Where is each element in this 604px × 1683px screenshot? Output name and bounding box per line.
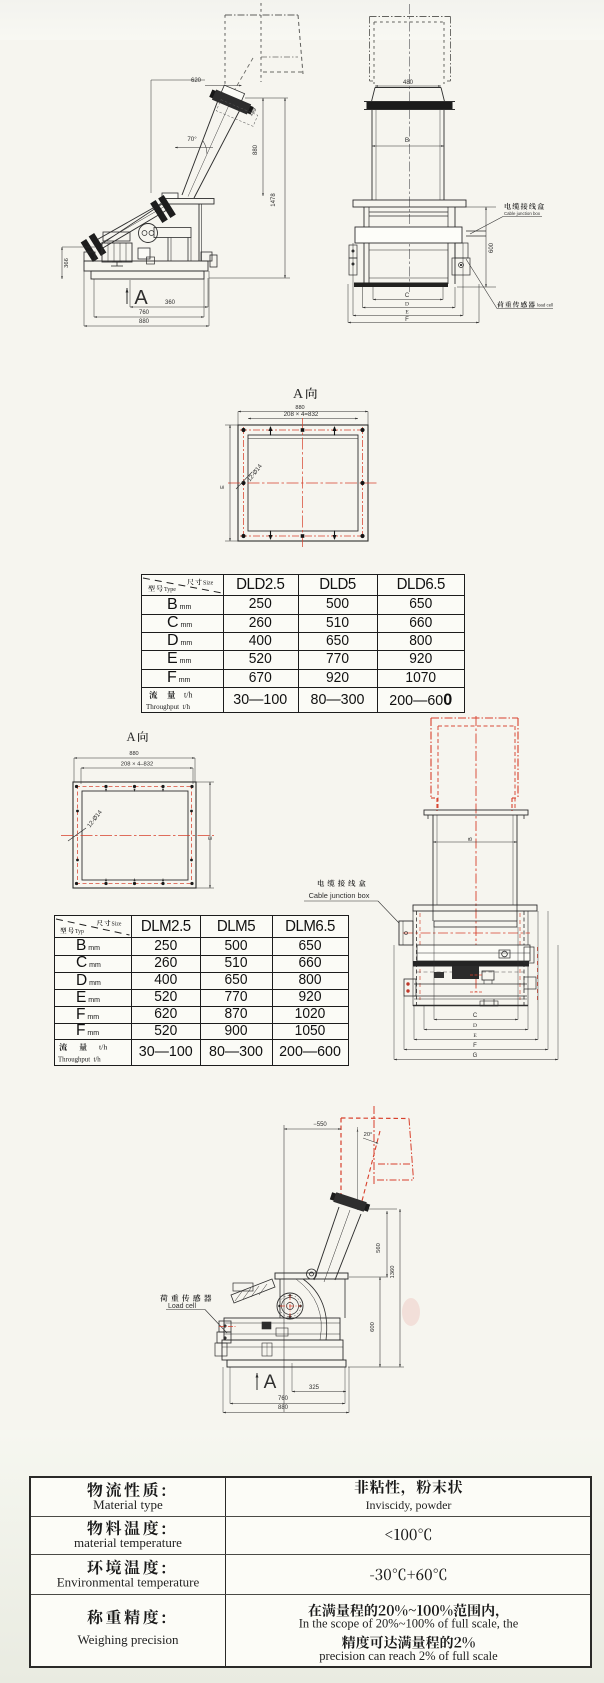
svg-text:In the scope of 20%~100% of fu: In the scope of 20%~100% of full scale, … [299, 1617, 519, 1631]
svg-text:480: 480 [403, 80, 414, 86]
svg-text:12-Ø14: 12-Ø14 [87, 809, 104, 829]
svg-text:A: A [126, 730, 135, 744]
svg-text:880: 880 [139, 319, 150, 325]
svg-text:325: 325 [309, 1385, 320, 1391]
svg-text:t/h: t/h [184, 691, 192, 700]
svg-text:F: F [405, 317, 409, 323]
svg-text:t/h: t/h [99, 1043, 107, 1052]
svg-text:360: 360 [165, 300, 176, 306]
svg-text:C: C [473, 1013, 478, 1019]
svg-text:Cable junction box: Cable junction box [504, 211, 541, 216]
svg-text:Cable junction box: Cable junction box [309, 891, 370, 900]
svg-text:D: D [473, 1023, 477, 1029]
svg-text:1360: 1360 [390, 1266, 396, 1279]
svg-text:G: G [473, 1053, 478, 1059]
svg-text:760: 760 [139, 310, 150, 316]
svg-text:material temperature: material temperature [74, 1535, 182, 1550]
svg-text:600: 600 [489, 242, 495, 253]
svg-text:Throughput t/h: Throughput t/h [146, 703, 190, 711]
svg-text:A: A [293, 387, 304, 402]
svg-text:Inviscidy, powder: Inviscidy, powder [366, 1498, 452, 1512]
svg-text:620: 620 [191, 78, 202, 84]
svg-text:Type: Type [164, 587, 176, 593]
svg-text:Throughput t/h: Throughput t/h [58, 1057, 101, 1064]
svg-text:E: E [208, 836, 214, 840]
svg-text:208 × 4=832: 208 × 4=832 [284, 411, 319, 418]
svg-text:366: 366 [64, 258, 70, 268]
svg-text:Size: Size [203, 581, 214, 587]
svg-text:Typ: Typ [75, 929, 84, 935]
svg-text:B: B [405, 137, 409, 144]
svg-text:880: 880 [129, 751, 138, 757]
svg-text:E: E [405, 310, 409, 316]
svg-text:E: E [220, 485, 226, 489]
svg-text:A: A [134, 287, 148, 309]
svg-text:600: 600 [370, 1322, 376, 1332]
svg-text:A: A [264, 1372, 277, 1393]
svg-text:F: F [473, 1043, 477, 1049]
svg-text:Environmental temperature: Environmental temperature [57, 1574, 200, 1589]
svg-text:Weighing precision: Weighing precision [77, 1632, 179, 1647]
svg-text:E: E [473, 1033, 477, 1039]
svg-text:−550: −550 [313, 1122, 327, 1128]
svg-text:1478: 1478 [271, 193, 277, 207]
svg-text:Material type: Material type [93, 1497, 163, 1512]
svg-text:880: 880 [253, 144, 259, 155]
svg-text:D: D [405, 302, 409, 308]
svg-text:12-Ø14: 12-Ø14 [247, 463, 264, 483]
svg-text:880: 880 [278, 1405, 289, 1411]
svg-text:208 × 4–832: 208 × 4–832 [121, 762, 153, 768]
svg-text:Size: Size [112, 922, 122, 928]
svg-text:precision can reach 2% of full: precision can reach 2% of full scale [319, 1649, 498, 1663]
svg-text:760: 760 [278, 1396, 289, 1402]
svg-text:70°: 70° [187, 136, 197, 143]
svg-text:Load cell: Load cell [168, 1303, 196, 1310]
svg-text:B: B [468, 837, 474, 841]
svg-text:20°: 20° [364, 1132, 373, 1138]
svg-text:560: 560 [376, 1243, 382, 1253]
svg-text:C: C [405, 293, 410, 299]
svg-text:load cell: load cell [537, 303, 553, 308]
